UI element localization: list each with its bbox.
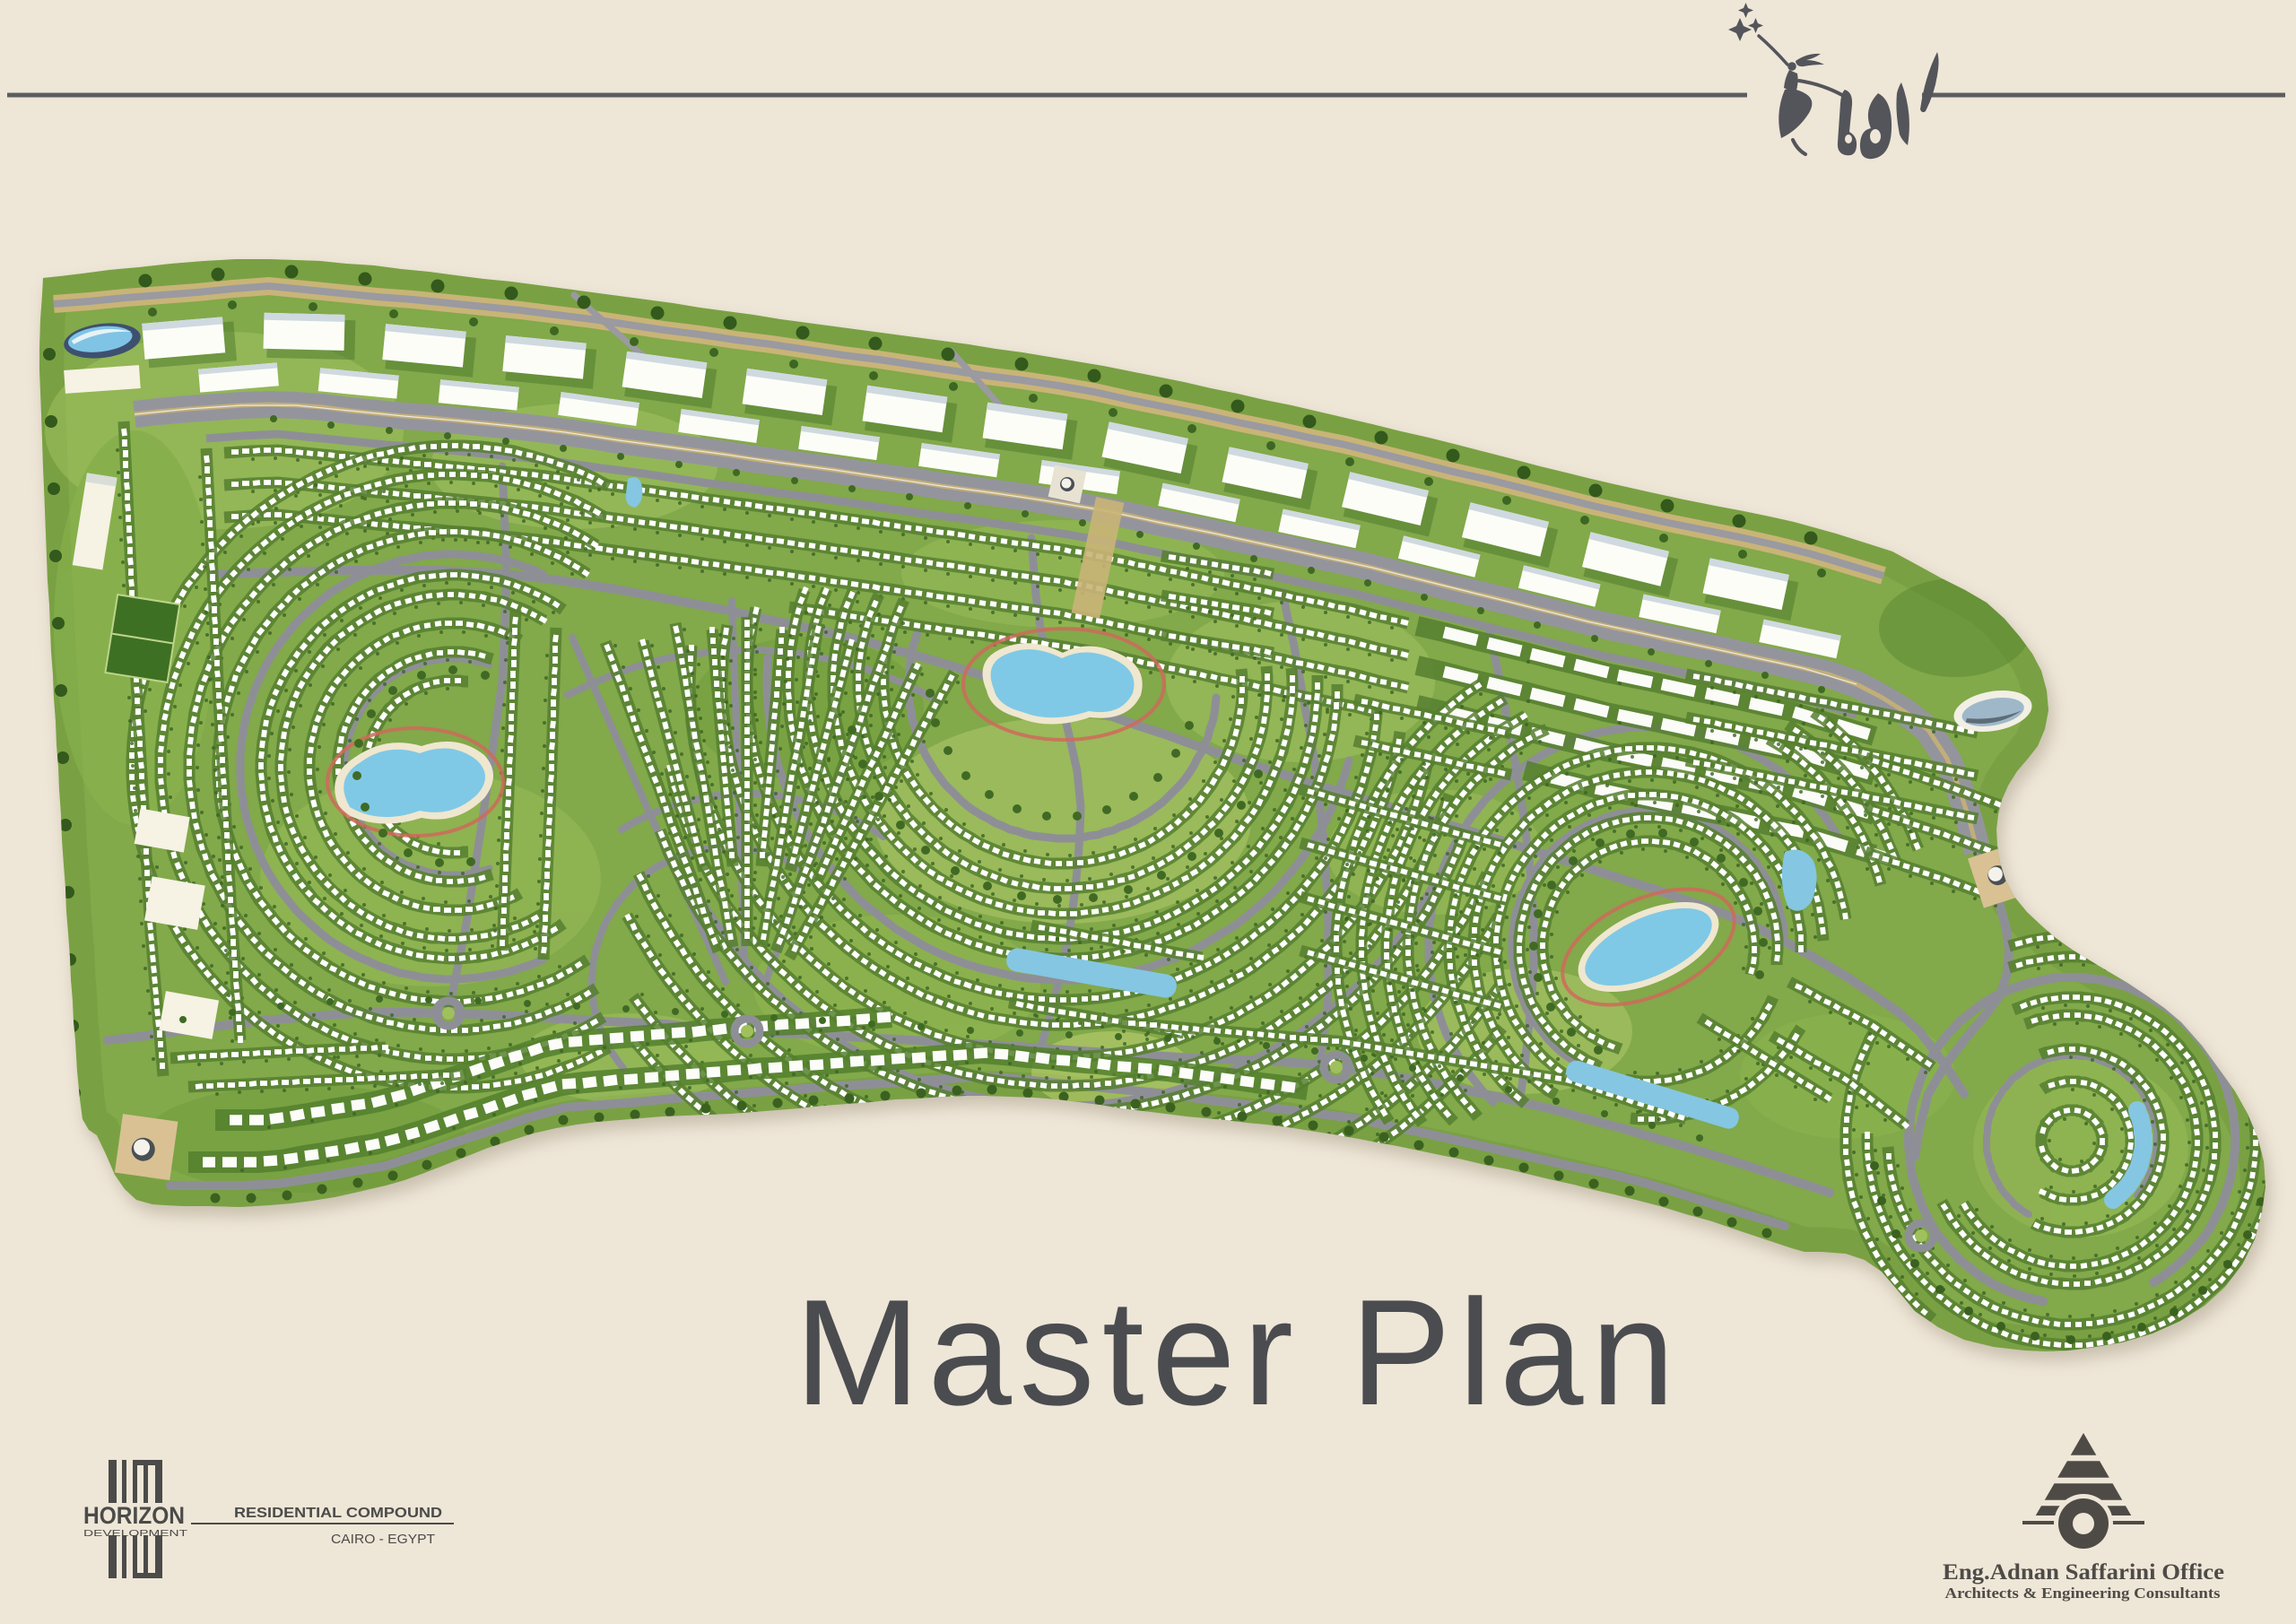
- svg-text:DEVELOPMENT: DEVELOPMENT: [83, 1529, 187, 1539]
- svg-text:Master Plan: Master Plan: [795, 1268, 1683, 1437]
- svg-text:Architects & Engineering Consu: Architects & Engineering Consultants: [1945, 1585, 2221, 1602]
- svg-text:HORIZON: HORIZON: [83, 1502, 185, 1529]
- svg-text:Eng.Adnan Saffarini Office: Eng.Adnan Saffarini Office: [1943, 1560, 2224, 1585]
- svg-text:RESIDENTIAL COMPOUND: RESIDENTIAL COMPOUND: [234, 1506, 442, 1521]
- svg-text:CAIRO - EGYPT: CAIRO - EGYPT: [331, 1532, 435, 1547]
